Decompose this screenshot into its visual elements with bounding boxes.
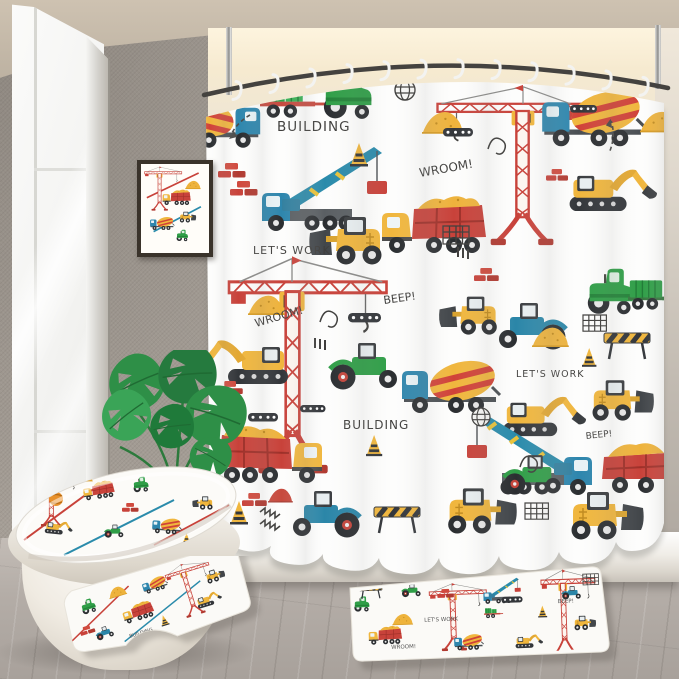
curtain-hook [381,62,389,80]
curtain-hook [492,61,500,79]
monstera-leaf [91,380,161,450]
curtain-hook [640,77,648,95]
mat-mini-text: BEEP! [558,599,574,606]
picture-frame [137,160,213,257]
curtain-hook [455,60,463,78]
curtain-hook [603,71,611,89]
curtain-pattern: BUILDING WROOM! LET'S WORK BEEP! WROOM! … [200,25,679,585]
curtain-hook [344,65,352,83]
curtain-fold-shading [200,25,679,585]
bathroom-product-photo: BUILDING WROOM! LET'S WORK BEEP! WROOM! … [0,0,679,679]
mat-mini-text: WROOM! [391,644,416,651]
mat-mini-text: LET'S WORK [424,617,458,624]
curtain-hook [418,60,426,78]
curtain-hook [307,69,315,87]
rod-support-pole-left [226,27,232,95]
curtain-hook [270,75,278,93]
curtain-hook [529,63,537,81]
frame-art [141,164,209,253]
contour-bath-mat: BUILDING [28,556,272,678]
rod-support-pole-right [655,25,661,89]
rectangular-bath-mat: LET'S WORK BEEP! WROOM! [334,558,620,676]
monstera-leaf [156,350,219,406]
shower-curtain-assembly: BUILDING WROOM! LET'S WORK BEEP! WROOM! … [200,25,679,585]
curtain-hook [566,66,574,84]
